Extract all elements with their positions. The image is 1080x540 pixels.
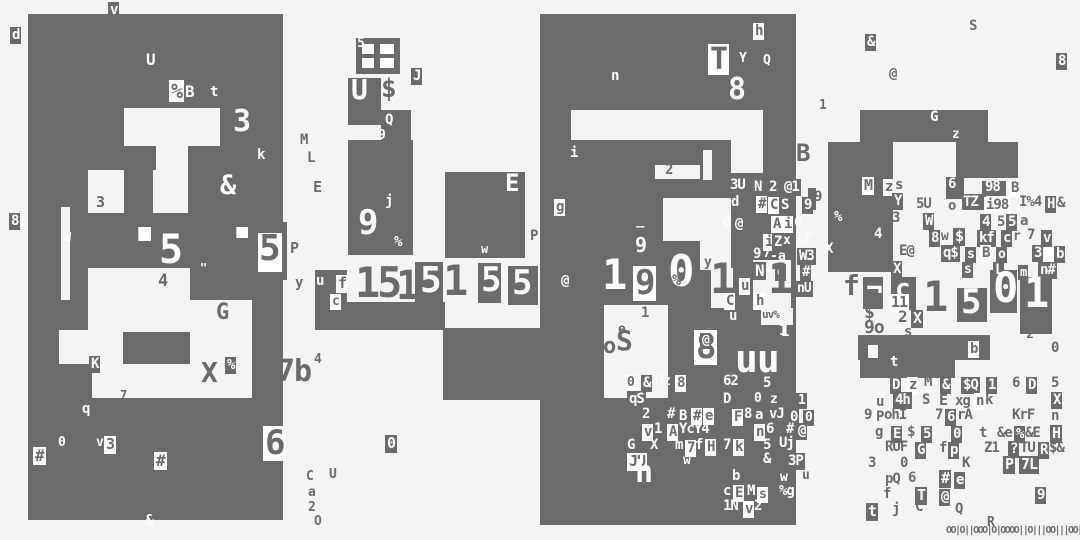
glitch-block-dark [828, 142, 893, 272]
glitch-glyph: w [481, 245, 487, 255]
glitch-glyph: P [1003, 456, 1015, 474]
glitch-block-light [362, 58, 374, 68]
glitch-glyph: 6 [1012, 378, 1019, 389]
glitch-glyph: n [611, 71, 618, 82]
glitch-glyph: % [169, 80, 184, 102]
glitch-glyph: 5 [1051, 378, 1058, 389]
glitch-glyph: 7 [723, 440, 730, 451]
glitch-canvas: OO|O||OOO|O|OOOO||O|||OO|||OO| vdU%Bt3kM… [0, 0, 1080, 540]
glitch-block-light [380, 44, 394, 54]
glitch-glyph: G [915, 442, 926, 459]
glitch-glyph: M [924, 377, 931, 388]
barcode-strip: OO|O||OOO|O|OOOO||O|||OO|||OO| [946, 526, 1080, 536]
glitch-glyph: Q [763, 56, 770, 67]
glitch-glyph: &E [1025, 428, 1040, 439]
glitch-glyph: 6 [948, 179, 955, 190]
glitch-block-light [655, 165, 700, 179]
glitch-glyph: M [862, 177, 874, 195]
glitch-glyph: # [33, 447, 46, 465]
glitch-glyph: U [146, 53, 155, 66]
glitch-glyph: E [939, 394, 947, 406]
glitch-glyph: g [875, 427, 882, 438]
glitch-glyph: w [941, 232, 948, 243]
glitch-glyph: H [1045, 196, 1056, 213]
glitch-glyph: m [675, 440, 682, 451]
glitch-glyph: # [756, 196, 767, 213]
glitch-glyph: 9 [802, 197, 813, 214]
glitch-glyph: 2 [767, 179, 778, 196]
glitch-glyph: b [732, 471, 739, 482]
glitch-glyph: TZ [963, 197, 978, 208]
glitch-glyph: 3 [892, 213, 899, 224]
glitch-glyph: 8 [744, 409, 751, 420]
glitch-glyph: o [996, 247, 1007, 263]
glitch-glyph: # [786, 424, 793, 435]
glitch-glyph: 2 [642, 409, 649, 420]
glitch-glyph: j [385, 196, 392, 207]
glitch-glyph: 5U [916, 199, 931, 210]
glitch-glyph: a [755, 410, 762, 421]
glitch-glyph: c [330, 294, 341, 310]
glitch-glyph: %g [779, 486, 794, 497]
glitch-block-light [703, 150, 712, 180]
glitch-glyph: 1 [641, 308, 648, 319]
glitch-glyph: o [603, 338, 615, 356]
glitch-glyph: 3 [104, 436, 116, 454]
glitch-glyph: 4 [158, 275, 167, 289]
glitch-glyph: 9 [753, 249, 760, 260]
glitch-block-light [868, 345, 878, 358]
glitch-glyph: 5 [357, 39, 364, 50]
glitch-glyph: 8 [9, 213, 20, 230]
glitch-glyph: u [729, 311, 736, 322]
glitch-glyph: 2 [898, 310, 907, 323]
glitch-glyph: h [635, 461, 652, 486]
glitch-block-light [88, 268, 190, 332]
glitch-glyph: 7 [1027, 230, 1034, 241]
glitch-glyph: 9 [358, 210, 377, 238]
glitch-glyph: 98 [985, 182, 1000, 193]
glitch-glyph: 3 [96, 196, 104, 208]
glitch-glyph: s [962, 262, 973, 278]
glitch-glyph: t [890, 357, 897, 368]
glitch-glyph: 1 [654, 424, 661, 435]
glitch-glyph: Q [955, 504, 962, 515]
glitch-block-light [663, 198, 731, 241]
glitch-glyph: F [732, 409, 743, 426]
glitch-glyph: 3 [233, 110, 250, 135]
glitch-block-light [124, 108, 220, 146]
glitch-glyph: i98 [984, 197, 1010, 214]
glitch-glyph: U [329, 470, 336, 481]
glitch-glyph: s [895, 180, 902, 191]
glitch-block-dark [956, 142, 1018, 178]
glitch-glyph: $& [1049, 443, 1064, 454]
glitch-glyph: Z1 [984, 443, 999, 454]
glitch-glyph: @ [700, 333, 711, 349]
glitch-glyph: k [985, 395, 992, 406]
glitch-glyph: Y [892, 193, 903, 210]
glitch-glyph: nU [795, 281, 813, 297]
glitch-glyph: u [316, 276, 323, 287]
glitch-glyph: z [770, 395, 777, 406]
glitch-glyph: 1 [796, 393, 807, 409]
glitch-glyph: 8 [929, 230, 940, 247]
glitch-glyph: % [672, 274, 680, 286]
glitch-glyph: Uz [655, 376, 670, 387]
glitch-glyph: # [667, 409, 674, 420]
glitch-glyph: O [314, 517, 321, 528]
glitch-glyph: 0 [385, 435, 397, 453]
glitch-glyph: 0 [625, 375, 636, 391]
glitch-glyph: @ [733, 216, 744, 233]
glitch-glyph: TU [1020, 443, 1035, 454]
glitch-glyph: f [695, 440, 702, 451]
glitch-glyph: 7 [935, 410, 942, 421]
glitch-glyph: I [779, 324, 787, 336]
glitch-glyph: f [336, 275, 348, 293]
glitch-glyph: I%4 [1019, 197, 1041, 208]
glitch-block-light [153, 170, 188, 213]
glitch-glyph: z [1026, 330, 1033, 341]
glitch-glyph: 6 [945, 409, 956, 426]
glitch-glyph: T [708, 44, 729, 75]
glitch-glyph: f [843, 275, 859, 298]
glitch-glyph: 1 [219, 222, 245, 258]
glitch-glyph: 1 [710, 262, 734, 296]
glitch-glyph: c [1001, 230, 1012, 247]
glitch-glyph: w [683, 456, 690, 467]
glitch-glyph: 9 [378, 131, 385, 142]
glitch-glyph: @ [939, 489, 950, 506]
glitch-glyph: 8 [1056, 53, 1067, 70]
glitch-block-dark [860, 110, 988, 142]
glitch-glyph: @1 [782, 179, 801, 196]
glitch-glyph: L [307, 153, 314, 164]
glitch-glyph: p [948, 442, 959, 459]
glitch-glyph: & [220, 175, 235, 197]
glitch-glyph: # [154, 452, 167, 470]
glitch-glyph: @ [796, 423, 807, 440]
glitch-glyph: 1 [396, 270, 419, 303]
glitch-glyph: f [883, 489, 890, 500]
glitch-glyph: P [530, 231, 537, 242]
glitch-glyph: R [1038, 442, 1049, 459]
glitch-glyph: 0 [1051, 343, 1058, 354]
glitch-glyph: 6 [908, 473, 915, 484]
glitch-glyph: d [10, 27, 21, 44]
glitch-glyph: $ [381, 79, 396, 100]
glitch-glyph: s [904, 327, 911, 338]
glitch-glyph: K [962, 458, 969, 469]
glitch-glyph: 1 [1024, 276, 1048, 310]
glitch-glyph: t [979, 428, 986, 439]
glitch-glyph: r [1013, 232, 1020, 243]
glitch-glyph: c [723, 486, 730, 497]
glitch-glyph: 9 [814, 192, 821, 203]
glitch-glyph: ohI [884, 410, 906, 421]
glitch-glyph: t [210, 87, 217, 98]
glitch-glyph: 0 [58, 438, 65, 449]
glitch-glyph: f [939, 443, 946, 454]
glitch-glyph: u [739, 278, 750, 295]
glitch-glyph: X [825, 244, 832, 255]
glitch-glyph: YcY4 [679, 424, 709, 435]
glitch-glyph: 6 [766, 424, 773, 435]
glitch-block-dark [443, 328, 540, 400]
glitch-glyph: 5 [921, 426, 932, 443]
glitch-glyph: E [313, 181, 321, 193]
glitch-glyph: 2 [308, 503, 315, 514]
glitch-glyph: 62 [723, 376, 738, 387]
glitch-glyph: x [783, 236, 790, 247]
glitch-glyph: 8 [675, 375, 686, 392]
glitch-glyph: i [782, 216, 793, 233]
glitch-glyph: 7L [1019, 456, 1039, 474]
glitch-glyph: 1N [723, 501, 738, 512]
glitch-glyph: n [1051, 411, 1058, 422]
glitch-glyph: B [796, 144, 809, 164]
glitch-glyph: X [1051, 392, 1062, 409]
glitch-block-light [571, 110, 763, 140]
glitch-glyph: 6 [124, 183, 132, 195]
glitch-glyph: % [394, 237, 401, 248]
glitch-glyph: 7b [277, 360, 311, 385]
glitch-glyph: J [411, 68, 422, 85]
glitch-glyph: 0 [993, 271, 1017, 305]
glitch-glyph: # [800, 264, 811, 281]
glitch-glyph: G [930, 112, 937, 123]
glitch-glyph: d [731, 197, 738, 208]
glitch-glyph: RUF [885, 442, 907, 453]
glitch-glyph: 9 [633, 266, 656, 301]
glitch-glyph: Uj [779, 438, 794, 449]
glitch-glyph: $Q [961, 377, 980, 394]
glitch-glyph: v [108, 2, 119, 19]
glitch-glyph: 1 [819, 101, 826, 112]
glitch-glyph: 1 [443, 264, 467, 298]
glitch-glyph: B [185, 85, 194, 98]
glitch-glyph: k [733, 439, 744, 456]
glitch-glyph: 5 [159, 234, 182, 267]
glitch-glyph: 5 [961, 289, 980, 317]
glitch-glyph: X [201, 362, 217, 385]
glitch-glyph: % [834, 212, 841, 223]
glitch-glyph: 9o [864, 321, 884, 336]
glitch-glyph: & [145, 514, 153, 526]
glitch-glyph: 3 [1032, 245, 1043, 262]
glitch-glyph: @ [561, 276, 568, 287]
glitch-glyph: 2 [754, 501, 761, 512]
glitch-glyph: S [616, 330, 632, 353]
glitch-glyph: D [1026, 377, 1037, 394]
glitch-glyph: G [794, 218, 801, 229]
glitch-block-light [731, 140, 763, 173]
glitch-glyph: W3 [797, 248, 816, 265]
glitch-glyph: S [922, 395, 929, 406]
glitch-glyph: # [939, 470, 951, 488]
glitch-glyph: N [752, 179, 763, 196]
glitch-glyph: G [216, 304, 228, 322]
glitch-glyph: 5 [761, 375, 772, 392]
glitch-glyph: E@ [899, 246, 914, 257]
glitch-glyph: q [82, 404, 89, 415]
glitch-glyph: k [257, 150, 264, 161]
glitch-glyph: Q [385, 115, 392, 126]
glitch-glyph: 4 [314, 355, 321, 366]
glitch-glyph: o [948, 201, 955, 212]
glitch-glyph: 1 [121, 222, 147, 258]
glitch-glyph: t [866, 503, 878, 521]
glitch-glyph: A [771, 216, 782, 233]
glitch-glyph: W [923, 213, 934, 230]
glitch-glyph: Y [739, 54, 746, 65]
glitch-glyph: N [753, 262, 766, 280]
glitch-glyph: KrF [1012, 410, 1034, 421]
glitch-glyph: 5 [763, 440, 770, 451]
glitch-glyph: W [64, 233, 70, 243]
glitch-glyph: P [290, 242, 298, 254]
glitch-glyph: & [641, 375, 652, 392]
glitch-glyph: d [723, 217, 730, 228]
glitch-glyph: v [96, 438, 103, 449]
glitch-glyph: M [747, 486, 754, 497]
glitch-glyph: 0 [951, 426, 962, 443]
glitch-glyph: 9 [635, 237, 646, 253]
glitch-glyph: &e [997, 428, 1012, 439]
glitch-glyph: vJ [769, 409, 784, 420]
glitch-glyph: D [723, 394, 730, 405]
glitch-glyph: 4 [874, 229, 881, 240]
glitch-glyph: rA [957, 410, 972, 421]
glitch-glyph: X [650, 440, 657, 451]
glitch-glyph: G [627, 440, 634, 451]
glitch-glyph: C [915, 502, 922, 513]
glitch-glyph: B [980, 245, 991, 262]
glitch-block-light [88, 170, 124, 213]
glitch-glyph: & [865, 34, 876, 51]
glitch-glyph: 4 [980, 214, 991, 231]
glitch-glyph: 5 [420, 266, 441, 296]
glitch-glyph: $ [953, 228, 965, 246]
glitch-glyph: X [911, 310, 923, 328]
glitch-glyph: a [1020, 216, 1027, 227]
glitch-glyph: 1 [768, 262, 792, 296]
glitch-glyph: U [351, 79, 367, 102]
glitch-glyph: & [763, 454, 770, 465]
glitch-glyph: 1 [923, 280, 947, 314]
glitch-glyph: 9 [1035, 487, 1046, 504]
glitch-glyph: n [974, 393, 985, 410]
glitch-block-light [61, 207, 70, 300]
glitch-glyph: 1 [355, 266, 379, 300]
glitch-glyph: E [505, 174, 518, 194]
glitch-glyph: 6 [263, 426, 286, 461]
glitch-glyph: @ [889, 69, 896, 80]
glitch-glyph: 2 [665, 165, 672, 176]
glitch-glyph: M [300, 135, 307, 146]
glitch-glyph: 0 [754, 394, 761, 405]
glitch-glyph: 8 [728, 78, 745, 103]
glitch-glyph: pQ [885, 474, 900, 485]
glitch-glyph: z [952, 130, 959, 141]
glitch-glyph: 5 [481, 267, 500, 295]
glitch-glyph: 1 [90, 228, 116, 264]
glitch-glyph: S [779, 197, 790, 214]
glitch-glyph: g [554, 199, 565, 216]
glitch-glyph: 3U [730, 180, 745, 191]
glitch-glyph: s [965, 247, 976, 263]
glitch-glyph: % [225, 357, 236, 374]
glitch-glyph: $ [907, 427, 914, 438]
glitch-glyph: C [768, 197, 779, 214]
glitch-glyph: e [954, 472, 965, 489]
glitch-block-dark [860, 355, 955, 378]
glitch-glyph: & [1057, 198, 1064, 209]
glitch-glyph: S [969, 21, 976, 32]
glitch-glyph: " [200, 264, 206, 274]
glitch-block-light [380, 58, 394, 68]
glitch-glyph: H [705, 439, 716, 456]
glitch-glyph: j [892, 504, 899, 515]
glitch-glyph: 7 [120, 391, 126, 401]
glitch-glyph: 0 [900, 458, 907, 469]
glitch-glyph: q$ [941, 245, 960, 262]
glitch-glyph: 3 [868, 458, 875, 469]
glitch-glyph: a [308, 488, 315, 499]
glitch-glyph: 5 [995, 214, 1006, 231]
glitch-glyph: 1 [190, 230, 214, 264]
glitch-glyph: y [295, 278, 302, 289]
glitch-glyph: i [570, 148, 577, 159]
glitch-glyph: h [753, 23, 764, 40]
glitch-glyph: 5 [512, 270, 531, 298]
glitch-glyph: %T [796, 235, 811, 246]
glitch-glyph: xg [955, 396, 970, 407]
glitch-glyph: uv% [762, 310, 779, 319]
glitch-glyph: K [89, 356, 100, 373]
glitch-glyph: C [306, 472, 313, 483]
glitch-glyph: v [743, 501, 754, 518]
glitch-glyph: b [968, 341, 979, 358]
glitch-glyph: u [802, 471, 809, 482]
glitch-glyph: 5 [259, 234, 280, 264]
glitch-glyph: b [1054, 246, 1065, 263]
glitch-glyph: 1 [602, 258, 626, 292]
glitch-glyph: 9 [864, 410, 871, 421]
glitch-glyph: uu [735, 344, 779, 375]
